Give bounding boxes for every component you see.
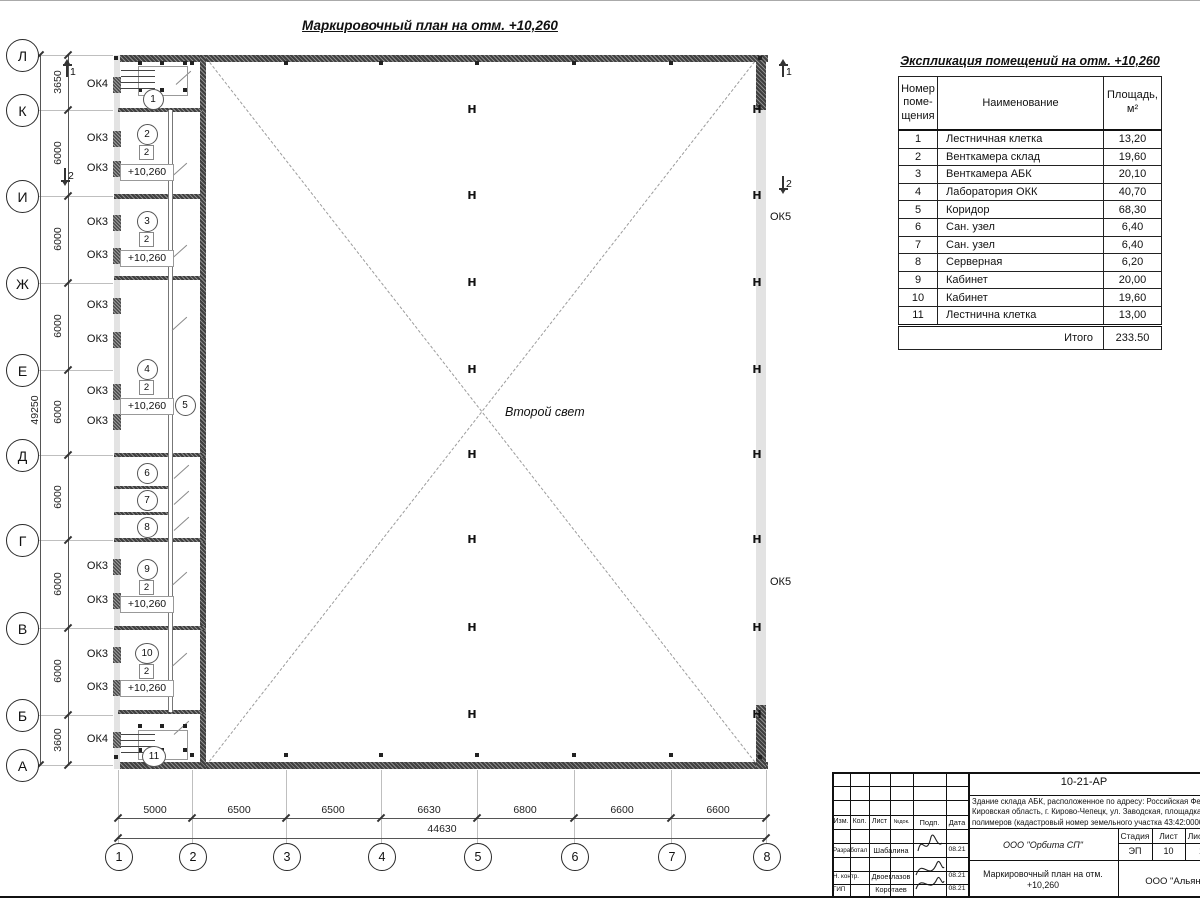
axis-line [36,765,113,766]
axis-line [36,55,113,56]
sig-name: Двоеглазов [869,872,913,881]
room-name: Венткамера склад [938,148,1104,166]
dimension-label: 6500 [303,804,363,816]
column-dot [379,753,383,757]
column-dot [160,724,164,728]
col-podp: Подп. [913,818,946,827]
room-number: 10 [899,289,938,307]
window-label: ОК4 [76,733,108,745]
room-number-bubble: 5 [175,395,196,416]
room-area: 6,40 [1104,218,1162,236]
sig-name: Коротаев [869,885,913,894]
dimension-label: 6600 [688,804,748,816]
col-kol: Кол. [850,818,869,825]
column-dot [572,753,576,757]
window-label: ОК3 [76,681,108,693]
section-mark-label: 1 [70,66,76,78]
schedule-row: 6Сан. узел6,40 [899,218,1162,236]
column-dot [190,61,194,65]
title-block-line [832,857,968,858]
window-label: ОК3 [76,594,108,606]
column-mark: Н [465,709,479,721]
column-mark: Н [750,449,764,461]
room-number: 2 [899,148,938,166]
row-axis-bubble: А [6,749,39,782]
row-axis-bubble: В [6,612,39,645]
column-dot [284,61,288,65]
window-label: ОК3 [76,162,108,174]
dimension-label: 6000 [52,467,64,527]
col-data: Дата [946,818,968,827]
room-area: 20,10 [1104,166,1162,184]
column-dot [114,755,118,759]
title-block: 10-21-АР Здание склада АБК, расположенно… [832,772,1200,897]
column-mark: Н [750,709,764,721]
section-mark-arrow [62,181,68,186]
room-type-badge: 2 [139,145,154,160]
section-mark-stem [782,64,784,77]
partition-wall [118,108,202,112]
dimension-line [68,55,69,765]
col-axis-bubble: 8 [753,843,781,871]
schedule-header-number-line: Номер [901,83,935,96]
dimension-label: 44630 [412,823,472,835]
room-number-bubble: 10 [135,643,159,664]
doc-number: 10-21-АР [968,776,1200,788]
sig-role: ГИП [833,886,870,893]
corridor-wall [200,55,206,769]
section-mark-arrow [64,59,70,64]
section-mark-label: 2 [68,170,74,182]
row-axis-bubble: И [6,180,39,213]
title-block-line [1118,828,1119,897]
room-name: Сан. узел [938,236,1104,254]
schedule-row: 7Сан. узел6,40 [899,236,1162,254]
column-dot [160,61,164,65]
title-block-line [832,843,968,844]
partition-wall [114,512,172,515]
project-address-line: Здание склада АБК, расположенное по адре… [972,797,1200,807]
window-opening [113,647,121,663]
room-name: Венткамера АБК [938,166,1104,184]
column-mark: Н [465,622,479,634]
column-mark: Н [465,104,479,116]
room-schedule: Экспликация помещений на отм. +10,260 Но… [898,54,1162,350]
axis-line [766,770,767,843]
col-list: Лист [869,818,890,825]
row-axis-bubble: К [6,94,39,127]
dimension-label: 6600 [592,804,652,816]
room-type-badge: 2 [139,580,154,595]
col-axis-bubble: 5 [464,843,492,871]
room-number: 3 [899,166,938,184]
title-block-line [832,772,1200,774]
axis-line [192,770,193,843]
column-dot [379,61,383,65]
window-opening [113,559,121,575]
project-address-line: Кировская область, г. Кирово-Чепецк, ул.… [972,807,1200,817]
column-mark: Н [465,277,479,289]
window-opening [113,332,121,348]
dimension-label: 3650 [52,52,64,112]
col-axis-bubble: 4 [368,843,396,871]
title-block-line [1118,843,1200,844]
column-dot [190,753,194,757]
partition-wall [114,626,206,630]
section-mark-arrow [780,189,786,194]
partition-wall [114,194,206,199]
room-name: Лестничная клетка [938,130,1104,148]
axis-line [36,540,113,541]
col-axis-bubble: 7 [658,843,686,871]
sig-name: Шабалина [869,846,913,855]
window-label: ОК3 [76,333,108,345]
room-number: 5 [899,201,938,219]
listov-header: Листов [1185,831,1200,841]
axis-line [118,770,119,843]
list-header: Лист [1152,831,1185,841]
column-mark: Н [465,190,479,202]
room-number: 9 [899,271,938,289]
dimension-label: 49250 [29,380,41,440]
schedule-row: 3Венткамера АБК20,10 [899,166,1162,184]
room-number: 6 [899,218,938,236]
stage-value: ЭП [1118,846,1152,856]
column-mark: Н [750,277,764,289]
dimension-label: 6000 [52,382,64,442]
axis-line [36,370,113,371]
room-type-badge: 2 [139,380,154,395]
door-swing [172,653,188,667]
column-dot [183,724,187,728]
row-axis-bubble: Б [6,699,39,732]
plan-title: Маркировочный план на отм. +10,260 [250,18,610,33]
column-mark: Н [750,364,764,376]
title-block-line [832,772,834,897]
column-mark: Н [465,449,479,461]
room-elevation: +10,260 [120,250,174,267]
axis-line [36,455,113,456]
window-label: ОК3 [76,249,108,261]
window-label: ОК5 [770,576,804,588]
room-area: 6,40 [1104,236,1162,254]
sheet-title: Маркировочный план на отм. +10,260 [973,869,1113,891]
door-swing [172,572,188,586]
list-value: 10 [1152,846,1185,856]
axis-line [36,715,113,716]
room-area: 40,70 [1104,183,1162,201]
room-name: Коридор [938,201,1104,219]
schedule-header-number-line: щения [901,110,935,123]
schedule-row: 4Лаборатория ОКК40,70 [899,183,1162,201]
column-dot [284,753,288,757]
dimension-label: 3600 [52,710,64,770]
col-axis-bubble: 2 [179,843,207,871]
title-block-line [946,772,947,897]
axis-line [36,110,113,111]
signature [913,829,946,897]
title-block-line [832,786,968,787]
schedule-total-value: 233.50 [1104,325,1162,349]
room-number-bubble: 11 [142,746,166,767]
window-label: ОК5 [770,211,804,223]
column-dot [138,61,142,65]
window-opening [113,77,121,93]
column-dot [669,61,673,65]
partition-wall [114,453,206,457]
room-number-bubble: 7 [137,490,158,511]
title-block-line [832,884,968,885]
room-number: 8 [899,254,938,272]
sig-role: Разработал [833,847,870,854]
schedule-row: 5Коридор68,30 [899,201,1162,219]
room-number-bubble: 4 [137,359,158,380]
title-block-line [832,829,968,830]
dimension-label: 6500 [209,804,269,816]
row-axis-bubble: Ж [6,267,39,300]
room-elevation: +10,260 [120,164,174,181]
dimension-label: 5000 [125,804,185,816]
window-opening [113,215,121,231]
schedule-header-area-line: м² [1106,103,1159,117]
section-mark-label: 1 [786,66,792,78]
dimension-label: 6000 [52,296,64,356]
schedule-row: 9Кабинет20,00 [899,271,1162,289]
wall-right-end [756,55,766,110]
column-dot [669,753,673,757]
schedule-row: 10Кабинет19,60 [899,289,1162,307]
section-mark-stem [66,64,68,77]
dimension-label: 6000 [52,123,64,183]
schedule-table: Номер поме- щения Наименование Площадь, … [898,76,1162,350]
column-dot [758,56,762,60]
window-opening [113,131,121,147]
door-swing [174,517,190,531]
schedule-row: 2Венткамера склад19,60 [899,148,1162,166]
wall-right [756,55,766,769]
room-number: 4 [899,183,938,201]
title-block-line [968,860,1200,861]
listov-value: 1 [1185,846,1200,856]
title-block-line [968,795,1200,796]
room-area: 19,60 [1104,148,1162,166]
project-address: Здание склада АБК, расположенное по адре… [972,797,1200,828]
axis-line [574,770,575,843]
title-block-line [869,772,870,897]
schedule-title: Экспликация помещений на отм. +10,260 [898,54,1162,68]
column-dot [114,56,118,60]
title-block-line [1152,828,1153,860]
column-mark: Н [465,364,479,376]
title-block-line [913,772,914,897]
title-block-line [968,772,970,897]
room-area: 19,60 [1104,289,1162,307]
room-name: Серверная [938,254,1104,272]
room-number: 7 [899,236,938,254]
title-block-line [832,800,968,801]
window-label: ОК3 [76,560,108,572]
room-number-bubble: 1 [143,89,164,110]
room-number-bubble: 3 [137,211,158,232]
window-opening [113,414,121,430]
room-elevation: +10,260 [120,680,174,697]
column-mark: Н [750,534,764,546]
section-mark-label: 2 [786,178,792,190]
axis-line [36,628,113,629]
room-number-bubble: 6 [137,463,158,484]
schedule-total-label: Итого [899,325,1104,349]
title-block-line [832,815,968,816]
room-number-bubble: 8 [137,517,158,538]
window-label: ОК3 [76,648,108,660]
axis-line [36,283,113,284]
sig-date: 08.21 [946,846,968,853]
sig-role: Н. контр. [833,873,870,880]
wall-bottom [114,762,768,769]
axis-line [671,770,672,843]
sig-date: 08.21 [946,872,968,879]
room-name: Лаборатория ОКК [938,183,1104,201]
col-axis-bubble: 6 [561,843,589,871]
column-dot [475,61,479,65]
room-name: Кабинет [938,289,1104,307]
room-type-badge: 2 [139,232,154,247]
dimension-label: 6000 [52,554,64,614]
title-block-line [890,772,891,897]
room-area: 13,20 [1104,130,1162,148]
section-mark-arrow [780,59,786,64]
title-block-line [1185,828,1186,860]
org-name: ООО "Орбита СП" [968,840,1118,850]
dimension-label: 6800 [495,804,555,816]
door-swing [174,491,190,505]
schedule-header-number-line: поме- [901,96,935,109]
row-axis-bubble: Д [6,439,39,472]
partition-wall [114,276,206,280]
column-mark: Н [750,622,764,634]
room-area: 6,20 [1104,254,1162,272]
title-block-line [850,772,851,897]
dimension-label: 6630 [399,804,459,816]
drawing-sheet: ОК4ОК3ОК3ОК3ОК3ОК3ОК3ОК3ОК3ОК3ОК3ОК3ОК3О… [0,0,1200,900]
room-area: 20,00 [1104,271,1162,289]
room-area: 68,30 [1104,201,1162,219]
column-dot [183,61,187,65]
window-opening [113,732,121,748]
room-number-bubble: 9 [137,559,158,580]
dimension-label: 6000 [52,641,64,701]
window-label: ОК3 [76,299,108,311]
title-block-line [832,896,1200,898]
room-elevation: +10,260 [120,596,174,613]
axis-line [286,770,287,843]
room-elevation: +10,260 [120,398,174,415]
dimension-label: 6000 [52,209,64,269]
row-axis-bubble: Е [6,354,39,387]
second-light-label: Второй свет [505,405,585,419]
room-type-badge: 2 [139,664,154,679]
column-dot [138,724,142,728]
schedule-header-number: Номер поме- щения [899,77,938,131]
partition-wall [118,710,206,714]
column-mark: Н [750,104,764,116]
room-number-bubble: 2 [137,124,158,145]
axis-line [381,770,382,843]
company-name: ООО "Альянс" [1122,876,1200,887]
schedule-row: 8Серверная6,20 [899,254,1162,272]
column-mark: Н [750,190,764,202]
schedule-header-area-line: Площадь, [1106,89,1159,103]
room-name: Кабинет [938,271,1104,289]
window-label: ОК3 [76,415,108,427]
dimension-line [118,838,766,839]
axis-line [477,770,478,843]
row-axis-bubble: Г [6,524,39,557]
title-block-line [968,828,1200,829]
schedule-header-area: Площадь, м² [1104,77,1162,131]
window-label: ОК3 [76,132,108,144]
sig-date: 08.21 [946,885,968,892]
column-dot [572,61,576,65]
project-address-line: полимеров (кадастровый номер земельного … [972,818,1200,828]
room-name: Сан. узел [938,218,1104,236]
room-area: 13,00 [1104,306,1162,325]
schedule-row: 11Лестнична клетка13,00 [899,306,1162,325]
window-label: ОК3 [76,216,108,228]
col-axis-bubble: 3 [273,843,301,871]
room-number: 11 [899,306,938,325]
col-axis-bubble: 1 [105,843,133,871]
door-swing [172,317,188,331]
window-label: ОК3 [76,385,108,397]
column-dot [758,755,762,759]
schedule-header-name: Наименование [938,77,1104,131]
row-axis-bubble: Л [6,39,39,72]
window-label: ОК4 [76,78,108,90]
door-swing [174,465,190,479]
partition-wall [114,486,172,489]
window-opening [113,298,121,314]
axis-line [36,196,113,197]
column-mark: Н [465,534,479,546]
col-ndok: №док. [890,819,913,825]
room-name: Лестнична клетка [938,306,1104,325]
partition-wall [114,538,206,542]
column-dot [475,753,479,757]
title-block-line [832,871,968,872]
col-izm: Изм. [832,818,850,825]
stage-header: Стадия [1118,831,1152,841]
room-number: 1 [899,130,938,148]
schedule-row: 1Лестничная клетка13,20 [899,130,1162,148]
